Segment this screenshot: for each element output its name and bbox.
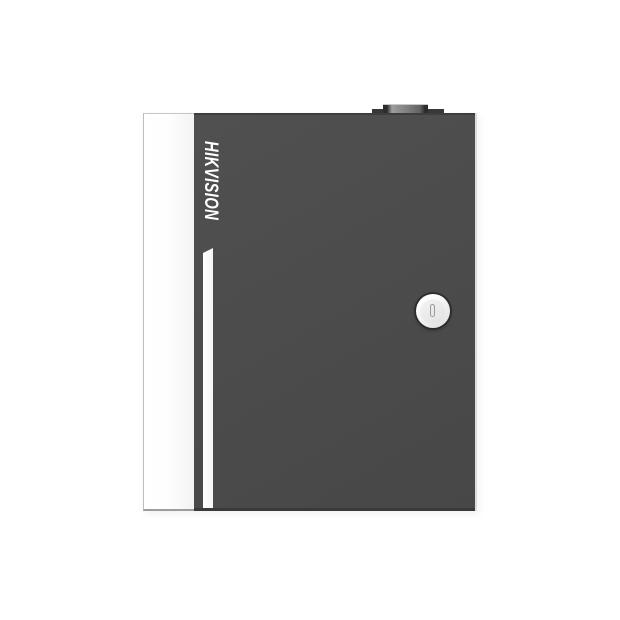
enclosure: HIKVISION <box>143 113 477 511</box>
lock-face <box>420 298 446 324</box>
brand-logo: HIKVISION <box>202 141 219 220</box>
side-panel <box>143 113 194 511</box>
hinge-icon <box>383 104 428 113</box>
accent-stripe <box>203 248 213 508</box>
product-photo: HIKVISION <box>0 0 620 620</box>
cam-lock <box>416 294 450 328</box>
keyhole-icon <box>430 304 435 317</box>
door-panel: HIKVISION <box>194 113 477 511</box>
